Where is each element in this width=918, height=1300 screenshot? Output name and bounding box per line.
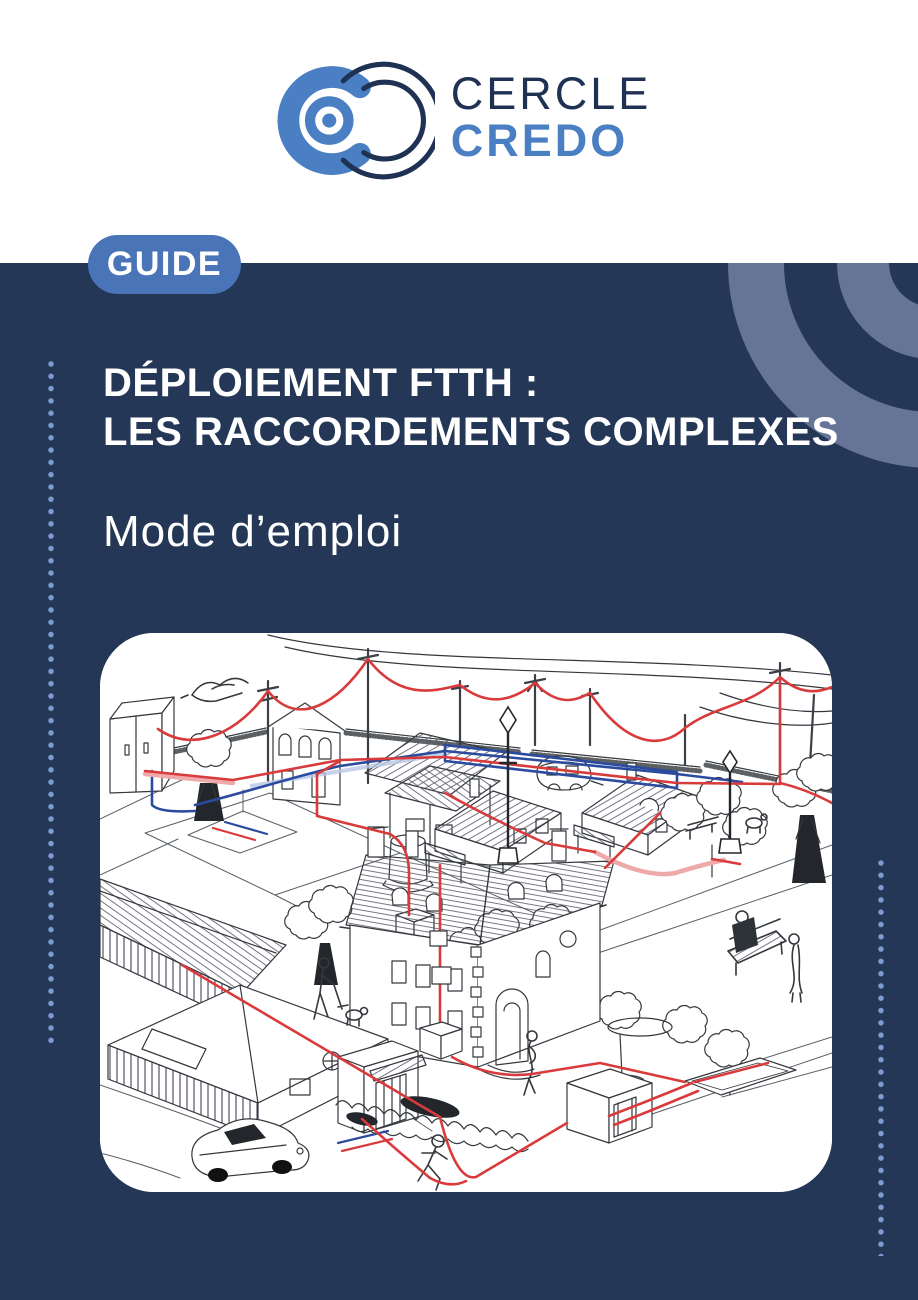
cover-subtitle: Mode d’emploi bbox=[103, 507, 402, 557]
header: CERCLE CREDO bbox=[0, 0, 918, 263]
cover-title-line2: LES RACCORDEMENTS COMPLEXES bbox=[103, 410, 839, 454]
guide-badge: GUIDE bbox=[88, 235, 241, 294]
cover-title-line1: DÉPLOIEMENT FTTH : bbox=[103, 361, 539, 405]
logo-text: CERCLE CREDO bbox=[451, 71, 652, 165]
logo-word-credo: CREDO bbox=[451, 118, 652, 165]
guide-badge-label: GUIDE bbox=[107, 245, 222, 284]
logo-word-cercle: CERCLE bbox=[451, 71, 652, 118]
illustration-panel bbox=[100, 633, 832, 1192]
cover-body: DÉPLOIEMENT FTTH : LES RACCORDEMENTS COM… bbox=[0, 263, 918, 1300]
dotted-line-right bbox=[876, 857, 886, 1256]
dotted-line-left bbox=[46, 358, 56, 1044]
concentric-circles-logo-icon bbox=[267, 54, 435, 182]
cover-title: DÉPLOIEMENT FTTH : LES RACCORDEMENTS COM… bbox=[103, 359, 839, 457]
cercle-credo-logo: CERCLE CREDO bbox=[267, 54, 652, 182]
ftth-village-illustration bbox=[100, 633, 832, 1192]
guide-cover-page: CERCLE CREDO GUIDE DÉPLOIEMENT FTTH : LE… bbox=[0, 0, 918, 1300]
